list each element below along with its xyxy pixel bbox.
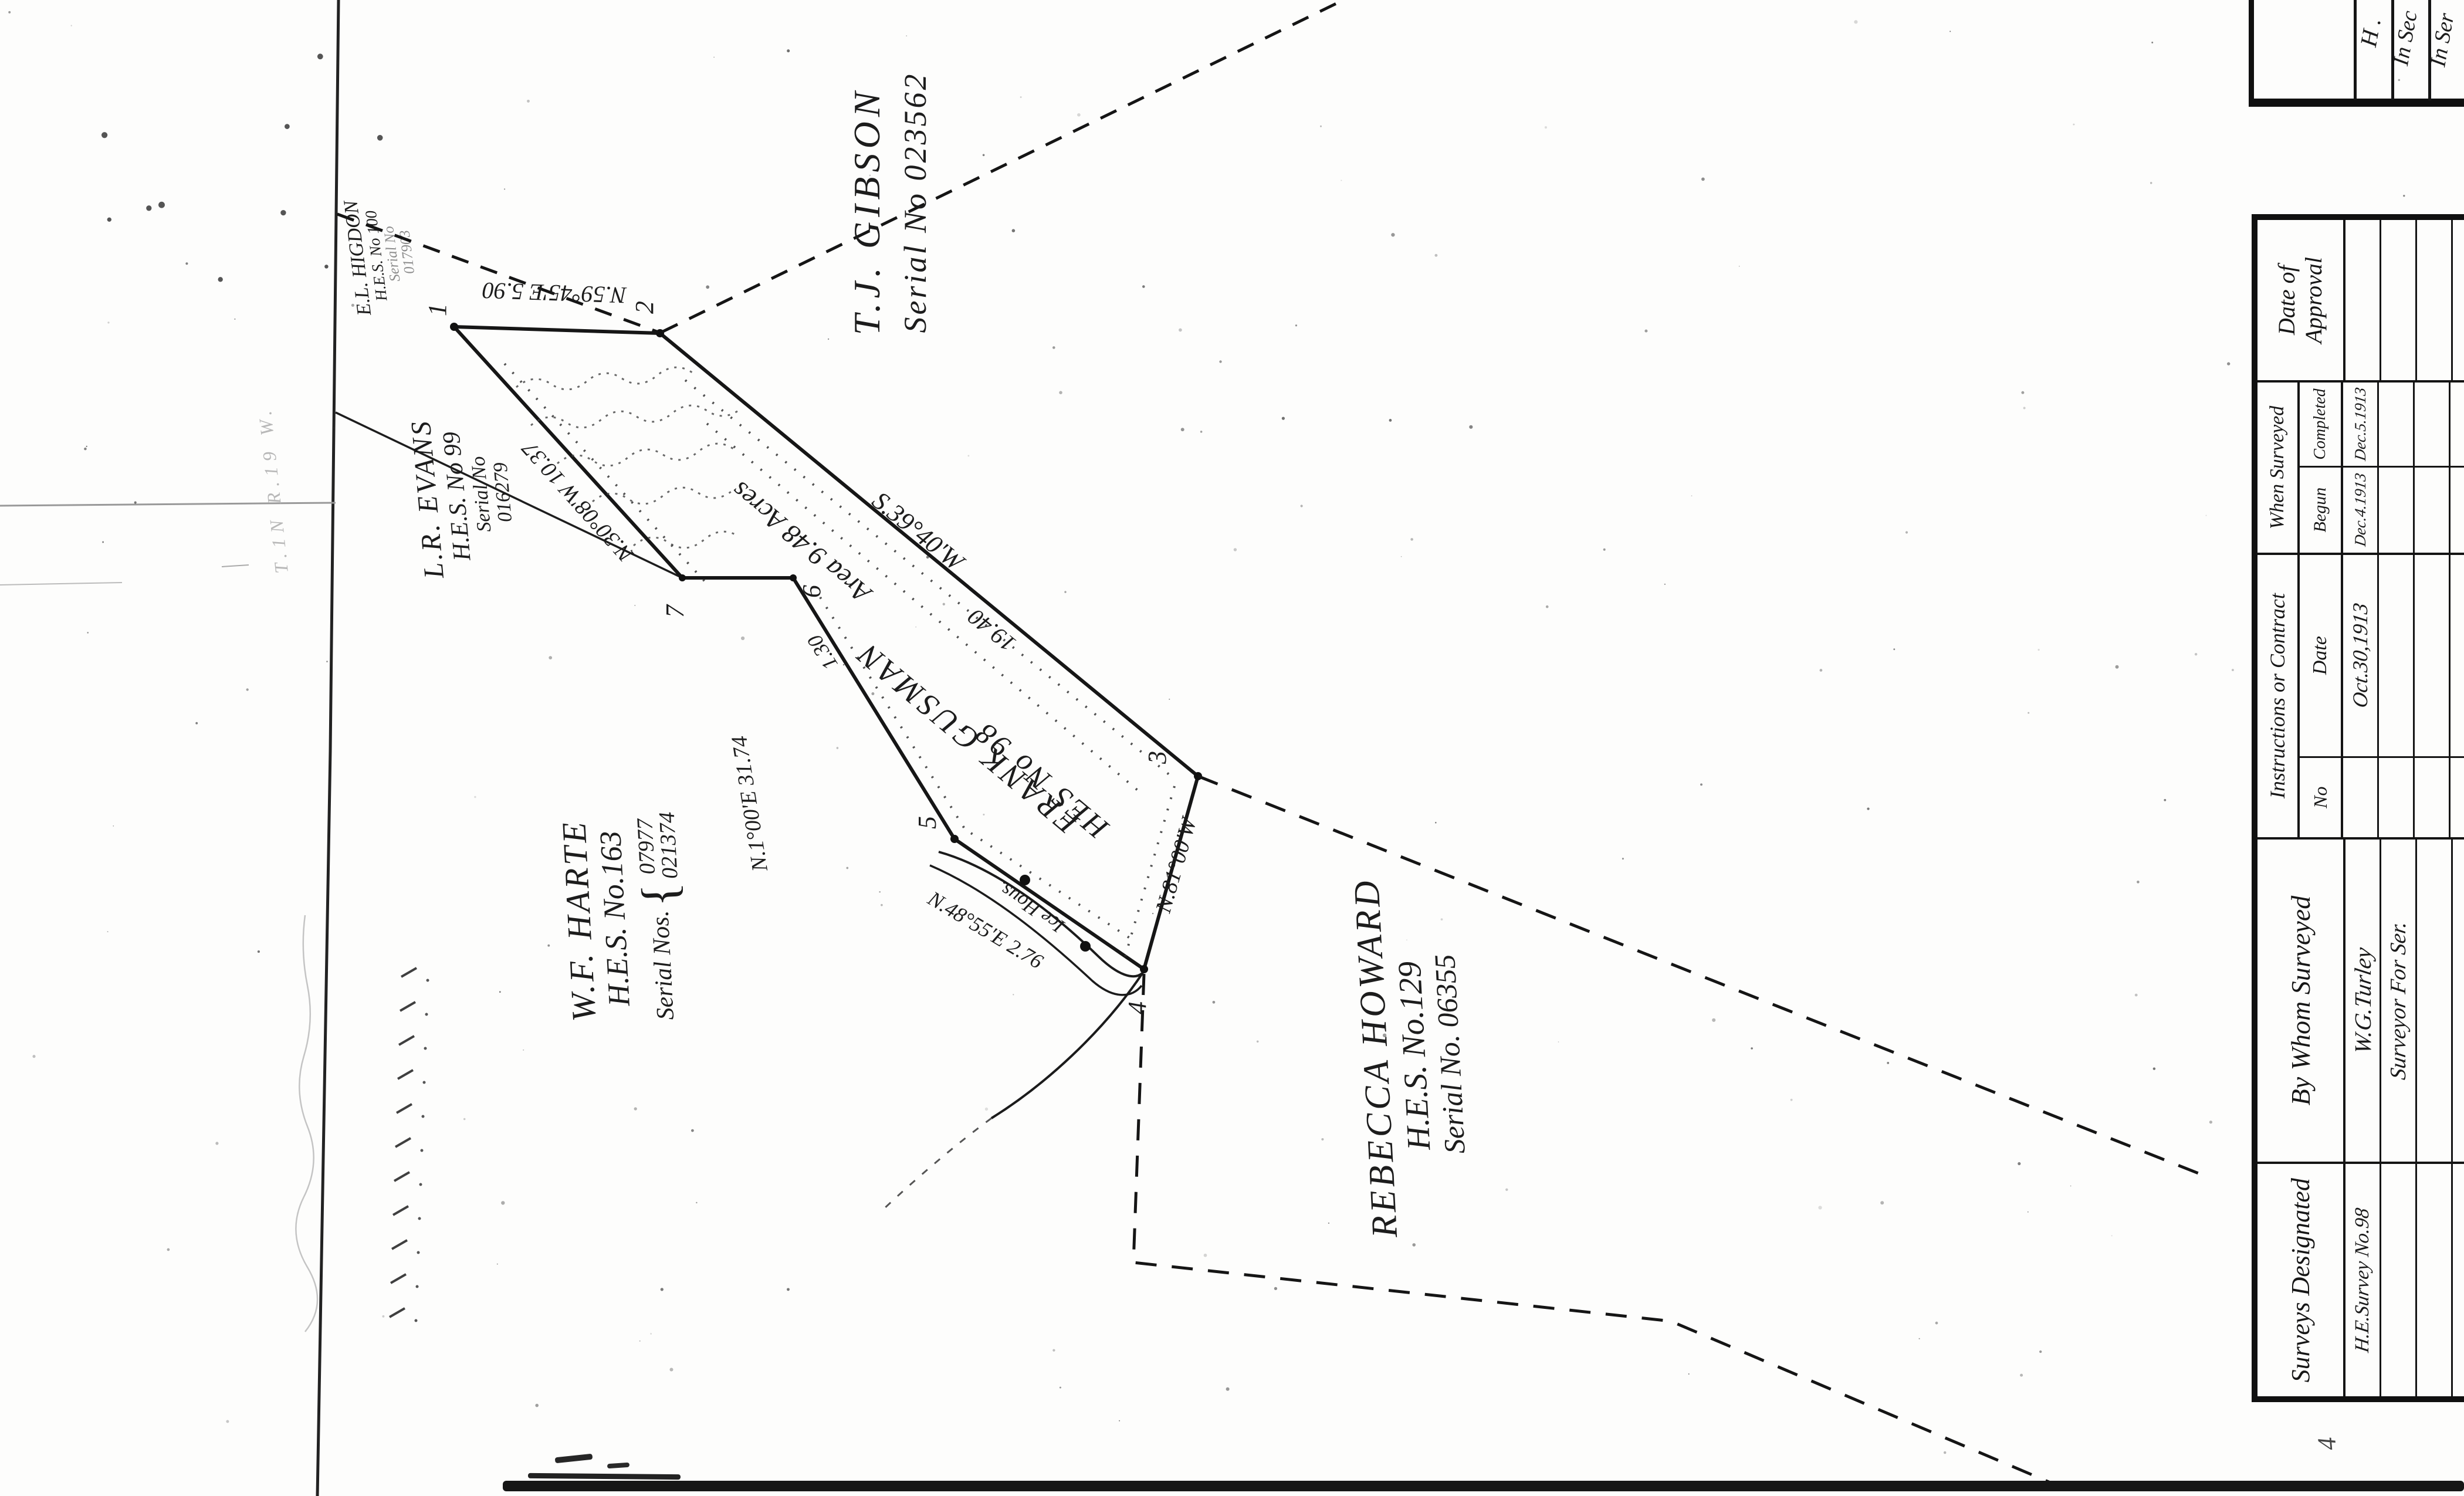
table-cell <box>2417 840 2453 1162</box>
table-col-date-of-approval: Date of Approval <box>2257 220 2464 380</box>
fragment-table-border-bottom <box>2249 99 2464 107</box>
cell-value: Surveyor For Ser. <box>2385 920 2411 1081</box>
cell-value: Dec.5.1913 <box>2351 387 2370 462</box>
scanned-survey-plat: T.J. GIBSON Serial No 023562 E.L. HIGDON… <box>0 0 2464 1496</box>
survey-table: Surveys Designated H.E.Survey No.98 By W… <box>2252 214 2464 1402</box>
fragment-table-border-vertical <box>2249 0 2254 103</box>
fragment-cell-1: H . <box>2353 0 2388 69</box>
table-cell <box>2453 840 2464 1162</box>
table-subcol-no: No <box>2300 758 2464 837</box>
table-cell <box>2379 383 2415 465</box>
cell-value: Dec.4.1913 <box>2351 472 2370 548</box>
table-cell <box>2415 468 2451 553</box>
table-cell <box>2451 758 2464 837</box>
table-cell <box>2379 468 2415 553</box>
table-header-surveys-designated: Surveys Designated <box>2257 1164 2345 1396</box>
table-cell <box>2453 1164 2464 1396</box>
corner-label-6: 6 <box>800 580 823 603</box>
table-col-by-whom-surveyed: By Whom Surveyed W.G.Turley Surveyor For… <box>2257 837 2464 1162</box>
harte-brace: { <box>631 881 688 908</box>
cell-value: H.E.Survey No.98 <box>2351 1207 2374 1354</box>
table-col-instructions: Instructions or Contract No Date Oct.30,… <box>2257 553 2464 837</box>
cell-value: Oct.30,1913 <box>2348 601 2372 709</box>
table-cell: Oct.30,1913 <box>2343 555 2379 756</box>
table-subcol-completed: Completed Dec.5.1913 <box>2300 383 2464 467</box>
parcel-label-gibson-name: T.J. GIBSON <box>847 6 888 417</box>
table-cell: Surveyor For Ser. <box>2381 840 2417 1162</box>
table-cell <box>2451 383 2464 465</box>
evans-serial: 016279 <box>490 462 517 523</box>
table-cell <box>2453 220 2464 380</box>
corner-label-5: 5 <box>915 811 939 834</box>
table-cell <box>2381 1164 2417 1396</box>
table-cell <box>2345 220 2381 380</box>
table-cell: Dec.4.1913 <box>2343 468 2379 553</box>
table-cell: H.E.Survey No.98 <box>2345 1164 2381 1396</box>
parcel-label-evans: L.R. EVANS H.E.S. No 99 Serial No 016279 <box>391 327 536 664</box>
parcel-label-gusman-hes: HES No 98 <box>936 688 1146 871</box>
table-cell <box>2417 220 2453 380</box>
table-cell <box>2379 758 2415 837</box>
table-cell <box>2451 555 2464 756</box>
table-header-instructions: Instructions or Contract <box>2257 555 2300 837</box>
parcel-label-howard: REBECCA HOWARD H.E.S. No.129 Serial No. … <box>1343 831 1478 1282</box>
table-cell <box>2415 758 2451 837</box>
table-cell: W.G.Turley <box>2345 840 2381 1162</box>
corner-label-7: 7 <box>663 600 686 623</box>
distance-line-2-3: 19.40 <box>947 592 1035 669</box>
table-cell <box>2415 383 2451 465</box>
table-col-surveys-designated: Surveys Designated H.E.Survey No.98 <box>2257 1162 2464 1396</box>
table-cell <box>2381 220 2417 380</box>
table-cell <box>2415 555 2451 756</box>
harte-serial-label: Serial Nos. <box>647 910 681 1021</box>
cell-value: W.G.Turley <box>2349 946 2377 1055</box>
table-subcol-date: Date Oct.30,1913 <box>2300 555 2464 758</box>
corner-label-3: 3 <box>1145 746 1169 769</box>
table-subheader-completed: Completed <box>2300 383 2343 465</box>
table-cell <box>2343 758 2379 837</box>
table-subheader-begun: Begun <box>2300 468 2343 553</box>
table-header-by-whom-surveyed: By Whom Surveyed <box>2257 840 2345 1162</box>
table-header-when-surveyed: When Surveyed <box>2257 383 2300 552</box>
table-cell: Dec.5.1913 <box>2343 383 2379 465</box>
bearing-line-3-4: N.81°00'W <box>1140 777 1212 953</box>
parcel-label-gusman-area: Area 9.48 Acres <box>675 434 927 652</box>
table-subcol-begun: Begun Dec.4.1913 <box>2300 468 2464 553</box>
table-header-date-of-approval: Date of Approval <box>2257 220 2345 380</box>
pencil-annotation: T.1N R.19 W. <box>247 354 299 625</box>
table-cell <box>2417 1164 2453 1396</box>
table-col-when-surveyed: When Surveyed Begun Dec.4.1913 Completed… <box>2257 380 2464 552</box>
table-subheader-no: No <box>2300 758 2343 837</box>
bearing-line-6-5: N.1°00'E 31.74 <box>719 680 780 927</box>
table-subheader-date: Date <box>2300 555 2343 756</box>
parcel-label-harte: W.F. HARTE H.E.S. No.163 Serial Nos. { 0… <box>545 733 705 1104</box>
stray-mark: 4 <box>2311 1431 2342 1457</box>
table-cell <box>2451 468 2464 553</box>
corner-label-4: 4 <box>1125 996 1149 1020</box>
bearing-line-1-2: N.59°45'E 5.90 <box>419 276 689 311</box>
harte-serial-2: 021374 <box>655 811 681 879</box>
table-cell <box>2379 555 2415 756</box>
parcel-label-gibson-serial: Serial No 023562 <box>895 0 936 408</box>
